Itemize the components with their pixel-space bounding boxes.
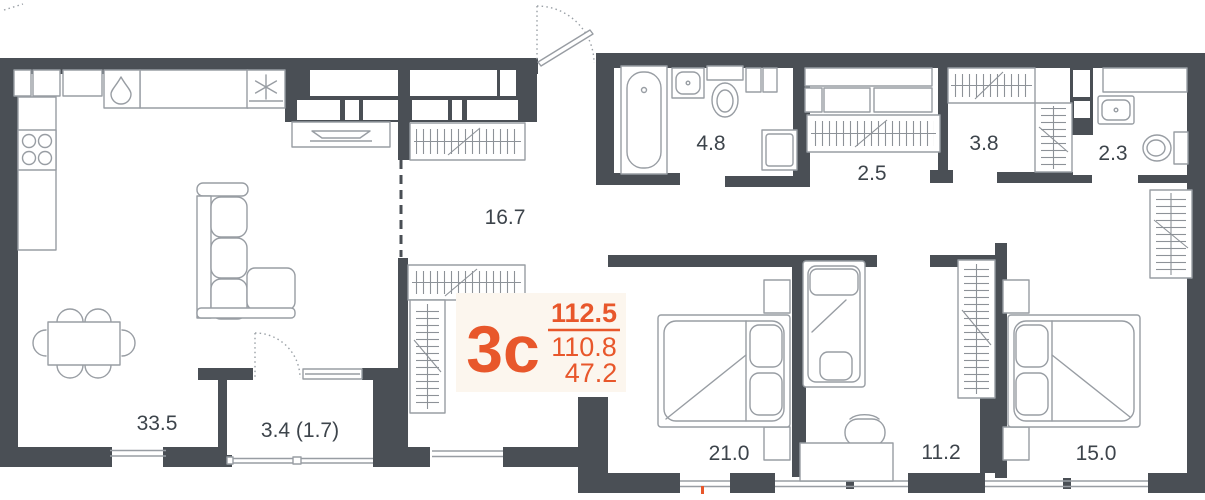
room-label-bedroom-master: 21.0 bbox=[709, 442, 750, 465]
unit-area-total: 112.5 bbox=[551, 298, 617, 328]
unit-area-kitchen: 47.2 bbox=[565, 358, 618, 388]
floor-plan: 3с 112.5 110.8 47.2 33.5 3.4 (1.7) 16.7 … bbox=[0, 0, 1205, 500]
wardrobe bbox=[1150, 190, 1192, 278]
window bbox=[110, 451, 166, 457]
corner-dotted-mark bbox=[4, 4, 23, 10]
desk-chair bbox=[845, 419, 885, 446]
unit-type-label: 3с bbox=[466, 312, 539, 386]
tv-console bbox=[292, 122, 390, 147]
tv-icon bbox=[312, 131, 370, 138]
dining-table bbox=[33, 309, 135, 378]
chair bbox=[85, 365, 111, 378]
wardrobe bbox=[410, 300, 445, 413]
chair bbox=[57, 365, 83, 378]
window bbox=[775, 481, 908, 487]
room-label-bedroom-small: 11.2 bbox=[921, 441, 960, 464]
sofa bbox=[197, 183, 295, 319]
wc-washbasin bbox=[1098, 96, 1134, 124]
room-label-dressing: 3.8 bbox=[969, 132, 998, 155]
room-label-wc: 2.3 bbox=[1098, 142, 1127, 165]
desk bbox=[800, 415, 893, 481]
toilet bbox=[707, 66, 743, 117]
entry-door bbox=[537, 6, 594, 66]
chair bbox=[33, 330, 46, 356]
room-label-loggia: 3.4 (1.7) bbox=[261, 419, 339, 442]
bathtub bbox=[621, 66, 667, 174]
bed-double bbox=[1008, 315, 1140, 427]
window bbox=[680, 481, 730, 487]
washing-machine bbox=[762, 130, 797, 170]
wardrobe bbox=[1035, 103, 1072, 172]
wardrobe bbox=[948, 68, 1035, 103]
room-label-bathroom: 4.8 bbox=[696, 132, 725, 155]
room-label-kitchen-living: 33.5 bbox=[137, 412, 178, 435]
room-label-hallway: 16.7 bbox=[485, 206, 526, 229]
kitchen-sink bbox=[104, 70, 140, 108]
bed-double bbox=[658, 315, 790, 427]
stove bbox=[18, 130, 56, 170]
loggia-door-swing-arc bbox=[255, 333, 300, 378]
loggia-glazing bbox=[227, 457, 373, 464]
wardrobe bbox=[807, 115, 940, 152]
washbasin bbox=[672, 68, 704, 98]
chair bbox=[122, 330, 135, 356]
chair bbox=[85, 309, 111, 322]
loggia-window-sill bbox=[303, 369, 362, 379]
room-label-bedroom-second: 15.0 bbox=[1076, 442, 1117, 465]
chair bbox=[57, 309, 83, 322]
room-label-corridor: 2.5 bbox=[857, 162, 886, 185]
fridge bbox=[247, 70, 285, 108]
entry-door-leaf bbox=[538, 30, 593, 66]
wc-toilet bbox=[1143, 132, 1188, 164]
wardrobe bbox=[410, 123, 525, 160]
plan-marker-tick bbox=[701, 486, 704, 494]
wardrobe bbox=[958, 260, 995, 398]
bed-single bbox=[803, 261, 865, 387]
window bbox=[432, 451, 503, 457]
